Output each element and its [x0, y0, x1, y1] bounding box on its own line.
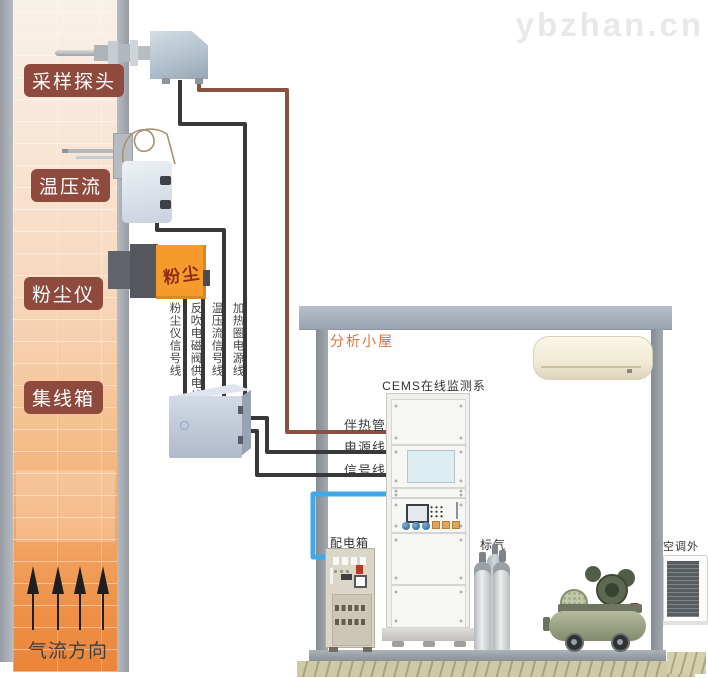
power-line-label: 电源线: [326, 437, 386, 456]
ac-outdoor-lip: [663, 621, 708, 625]
probe-collar: [94, 45, 108, 61]
airflow-arrow-stem: [79, 593, 81, 630]
ac-outdoor-grille: [667, 561, 699, 617]
breaker: [351, 557, 357, 565]
airflow-arrow-icon: [97, 566, 109, 594]
breaker: [333, 557, 339, 565]
airflow-arrow-stem: [102, 593, 104, 630]
indicator-light: [340, 570, 343, 573]
cabinet-knob: [422, 522, 430, 530]
probe-flange: [130, 40, 138, 66]
cabinet-panel: [391, 399, 466, 445]
cems-cabinet: [386, 393, 470, 650]
cabinet-panel: [391, 533, 466, 585]
stack-highlight: [16, 470, 115, 542]
indicator-light: [346, 570, 349, 573]
cabin-roof: [299, 306, 672, 330]
label-sampling-probe: 采样探头: [24, 64, 124, 97]
tpf-button: [160, 200, 171, 209]
probe-connector: [162, 78, 170, 84]
switch-handle: [341, 574, 352, 580]
watermark: ybzhan.cn: [516, 6, 704, 44]
breaker: [360, 557, 366, 565]
compressor-tank: [549, 611, 646, 641]
cabinet-switch: [452, 521, 460, 529]
airflow-arrow-icon: [27, 566, 39, 594]
probe-collar: [118, 44, 130, 62]
cylinder-valve: [499, 550, 506, 562]
heat-trace-label: 伴热管: [326, 415, 386, 434]
gas-cylinder: [493, 562, 510, 650]
ac-pedestal: [667, 652, 706, 674]
sampling-probe-box: [150, 31, 208, 79]
dust-meter-port: [203, 270, 210, 286]
cabinet-window: [407, 450, 455, 483]
stack-right-wall: [117, 0, 129, 672]
compressor-pump-hub: [605, 583, 619, 597]
cabinet-switch: [432, 521, 440, 529]
meter: [354, 575, 367, 588]
vent-slots: [335, 605, 367, 611]
power-box-foot: [363, 647, 372, 652]
probe-flange: [108, 41, 118, 65]
airflow-arrow-stem: [32, 593, 34, 630]
breaker: [342, 557, 348, 565]
cems-diagram: ybzhan.cn 气流方向 分析小屋 粉尘仪信号线 反吹电磁阀供电线 温压流信…: [0, 0, 708, 678]
controller-slider: [456, 502, 458, 519]
cabin-right-wall: [651, 329, 663, 651]
probe-collar: [138, 46, 152, 60]
cabinet-foot: [392, 641, 404, 647]
wheel-hub: [617, 639, 623, 645]
cable-label-tpf-signal: 温压流信号线: [210, 302, 222, 377]
wheel-hub: [571, 639, 577, 645]
airflow-arrow-stem: [57, 593, 59, 630]
power-box-foot: [329, 647, 338, 652]
label-tpf: 温压流: [31, 169, 110, 202]
tpf-button: [160, 176, 171, 185]
cabinet-foot: [423, 641, 435, 647]
ground: [297, 661, 695, 677]
power-distribution-box: [325, 548, 375, 648]
cabinet-panel: [391, 585, 466, 628]
indicator-light: [334, 570, 337, 573]
ac-indoor-unit: [533, 336, 653, 380]
gas-cylinder: [474, 562, 491, 650]
cable-label-blowback-power: 反吹电磁阀供电线: [189, 302, 201, 402]
junction-box-lock: [180, 421, 189, 430]
cabinet-panel: [391, 488, 466, 498]
din-rail: [330, 568, 333, 584]
airflow-arrow-icon: [52, 566, 64, 594]
cable-label-dust-signal: 粉尘仪信号线: [168, 302, 180, 377]
probe-connector: [195, 78, 203, 84]
signal-line-label: 信号线: [326, 460, 386, 479]
vent-slots: [335, 619, 367, 625]
cabinet-base: [382, 628, 474, 641]
dust-meter-mount: [130, 244, 158, 298]
airflow-arrow-icon: [74, 566, 86, 594]
ac-indoor-vent: [541, 366, 641, 368]
heat-trace-pipe: [199, 80, 390, 432]
tpf-sensor-box: [122, 161, 172, 223]
controller-screen: [406, 504, 429, 523]
cabin-title: 分析小屋: [330, 331, 394, 351]
cabinet-switch: [442, 521, 450, 529]
cabinet-foot: [454, 641, 466, 647]
junction-box-tab: [238, 406, 243, 414]
stack-left-wall: [0, 0, 13, 662]
ac-indoor-indicator: [627, 369, 632, 373]
cable-label-heater-power: 加热圈电源线: [231, 302, 243, 377]
red-button: [356, 565, 363, 574]
airflow-direction-label: 气流方向: [28, 636, 108, 663]
label-dust-meter: 粉尘仪: [24, 277, 103, 310]
cabinet-knob: [402, 522, 410, 530]
junction-box-side: [241, 390, 251, 456]
dust-meter-text: 粉尘: [161, 258, 202, 288]
label-junction-box: 集线箱: [24, 381, 103, 414]
controller-keypad: [429, 505, 445, 518]
cabinet-knob: [412, 522, 420, 530]
junction-box-tab: [238, 436, 243, 444]
